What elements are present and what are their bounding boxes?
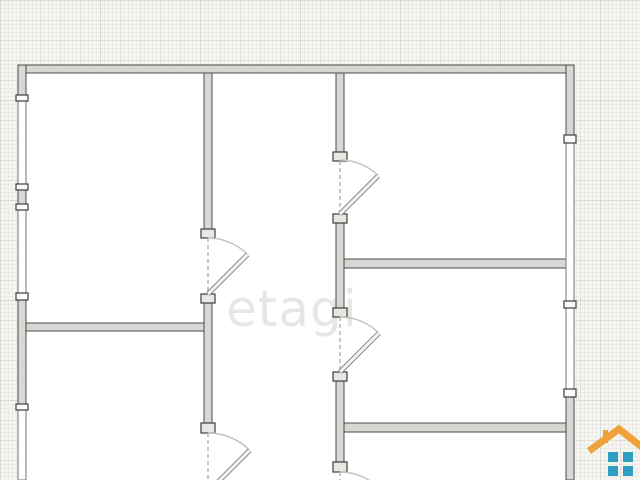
door-jamb [201, 294, 215, 303]
wall-segment [336, 73, 344, 152]
door-leaf [340, 176, 378, 214]
window-cap [564, 389, 576, 397]
floor-plan-drawing [0, 0, 640, 480]
door-swing-arc [340, 472, 380, 480]
door-jamb [201, 423, 215, 433]
door-jamb [333, 308, 347, 317]
door-swing-arc [340, 317, 379, 333]
door-leaf [208, 450, 250, 480]
wall-segment [566, 397, 574, 480]
wall-segment [336, 381, 344, 462]
wall-segment [566, 65, 574, 135]
wall-segment [204, 73, 212, 230]
window-segment [18, 101, 26, 184]
window-cap [16, 293, 28, 300]
floorplan-image: etagi [0, 0, 640, 480]
window-cap [16, 204, 28, 210]
door-leaf [208, 254, 248, 294]
door-jamb [201, 229, 215, 238]
window-segment [18, 210, 26, 293]
window-cap [16, 95, 28, 101]
window-segment [566, 143, 574, 301]
door-jamb [333, 462, 347, 472]
window-segment [566, 308, 574, 389]
wall-segment [18, 190, 26, 204]
wall-segment [344, 259, 566, 268]
door-swing-arc [208, 238, 248, 254]
wall-segment [18, 65, 26, 95]
house-logo-icon [585, 424, 640, 480]
window-cap [564, 301, 576, 308]
wall-segment [204, 303, 212, 423]
window-cap [16, 404, 28, 410]
door-swing-arc [340, 160, 378, 176]
door-swing-arc [208, 433, 250, 450]
wall-segment [18, 65, 574, 73]
door-leaf [340, 333, 379, 372]
wall-segment [18, 300, 26, 404]
window-cap [16, 184, 28, 190]
window-segment [18, 410, 26, 480]
wall-segment [336, 223, 344, 309]
wall-segment [344, 423, 566, 432]
wall-segment [26, 323, 204, 331]
door-jamb [333, 372, 347, 381]
door-jamb [333, 214, 347, 223]
window-cap [564, 135, 576, 143]
